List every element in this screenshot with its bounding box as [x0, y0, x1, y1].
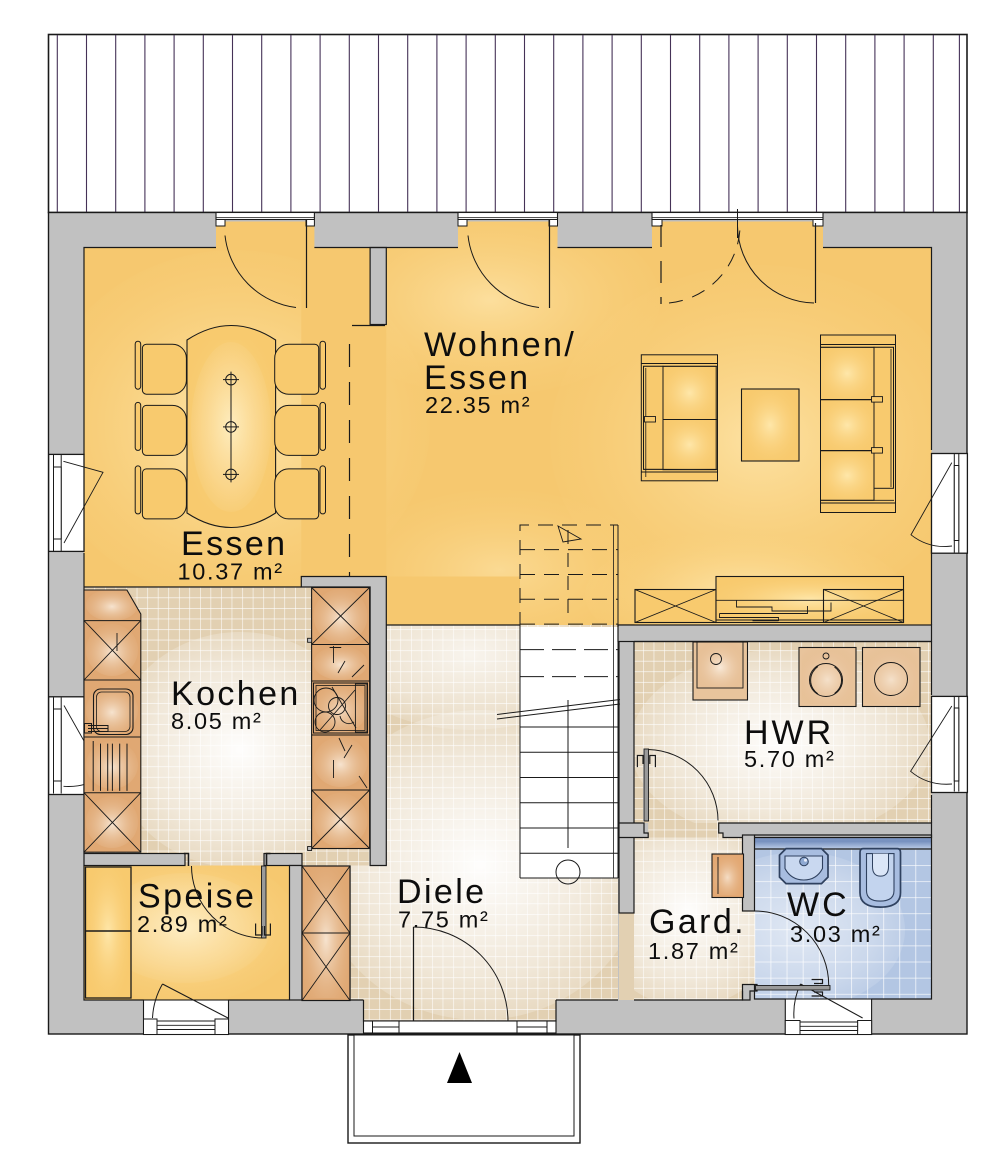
- svg-text:WC: WC: [787, 886, 850, 924]
- svg-text:10.37 m²: 10.37 m²: [178, 559, 284, 585]
- svg-text:Diele: Diele: [397, 873, 486, 911]
- svg-text:5.70 m²: 5.70 m²: [744, 746, 836, 772]
- svg-text:22.35 m²: 22.35 m²: [425, 392, 531, 418]
- svg-text:2.89 m²: 2.89 m²: [137, 911, 229, 937]
- svg-text:1.87 m²: 1.87 m²: [648, 938, 740, 964]
- svg-text:7.75 m²: 7.75 m²: [398, 907, 490, 933]
- svg-text:Gard.: Gard.: [649, 903, 746, 941]
- svg-text:Speise: Speise: [138, 878, 256, 916]
- svg-text:8.05 m²: 8.05 m²: [171, 708, 263, 734]
- svg-text:3.03 m²: 3.03 m²: [790, 921, 882, 947]
- svg-text:Essen: Essen: [181, 525, 288, 563]
